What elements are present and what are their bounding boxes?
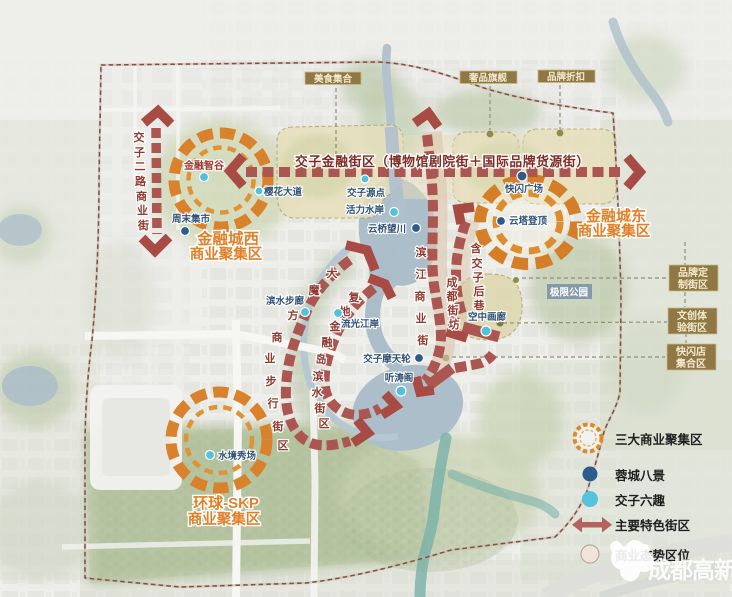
svg-text:滨: 滨 — [416, 245, 427, 259]
svg-text:美食集合: 美食集合 — [313, 73, 353, 85]
svg-text:区: 区 — [278, 439, 289, 452]
svg-text:交子摩天轮: 交子摩天轮 — [363, 353, 411, 365]
svg-text:交: 交 — [472, 256, 483, 270]
svg-text:环球-SKP: 环球-SKP — [193, 494, 259, 512]
svg-text:子: 子 — [473, 271, 484, 284]
svg-text:文创体: 文创体 — [677, 309, 708, 322]
svg-text:都: 都 — [446, 289, 458, 303]
svg-text:复: 复 — [348, 290, 361, 304]
svg-text:集合区: 集合区 — [675, 357, 706, 370]
svg-text:金融城东: 金融城东 — [585, 207, 646, 225]
svg-text:金融智谷: 金融智谷 — [183, 159, 225, 172]
svg-text:岛: 岛 — [316, 352, 327, 366]
svg-text:步: 步 — [266, 374, 277, 388]
svg-text:周末集市: 周末集市 — [172, 213, 211, 225]
svg-text:云塔登顶: 云塔登顶 — [509, 215, 548, 227]
svg-text:极限公园: 极限公园 — [550, 287, 588, 299]
svg-text:成都高新: 成都高新 — [648, 557, 732, 583]
svg-text:二: 二 — [135, 161, 146, 173]
svg-text:含: 含 — [470, 241, 483, 255]
svg-text:魔: 魔 — [309, 283, 321, 297]
svg-text:水: 水 — [312, 385, 324, 399]
svg-text:品牌折扣: 品牌折扣 — [547, 71, 585, 83]
svg-text:快闪店: 快闪店 — [675, 345, 706, 358]
svg-text:商: 商 — [272, 330, 283, 344]
svg-text:验街区: 验街区 — [677, 321, 707, 334]
svg-text:奢品旗舰: 奢品旗舰 — [468, 72, 508, 84]
svg-text:街: 街 — [137, 218, 149, 232]
svg-text:品牌定: 品牌定 — [678, 266, 708, 279]
svg-text:主要特色街区: 主要特色街区 — [615, 518, 691, 533]
svg-text:蓉城八景: 蓉城八景 — [615, 468, 666, 483]
svg-text:行: 行 — [267, 396, 279, 410]
svg-text:水境秀场: 水境秀场 — [218, 450, 257, 462]
svg-text:业: 业 — [137, 203, 148, 217]
svg-text:流光江岸: 流光江岸 — [341, 318, 380, 330]
svg-text:快闪广场: 快闪广场 — [505, 183, 544, 195]
svg-text:樱花大道: 樱花大道 — [263, 186, 303, 198]
svg-text:方: 方 — [288, 308, 299, 322]
svg-text:交: 交 — [134, 130, 145, 144]
svg-text:路: 路 — [135, 174, 147, 188]
svg-text:听涛阁: 听涛阁 — [385, 372, 414, 384]
svg-text:江: 江 — [416, 267, 427, 281]
svg-text:滨: 滨 — [313, 369, 324, 383]
svg-text:业: 业 — [265, 351, 276, 365]
svg-text:交子六趣: 交子六趣 — [615, 493, 666, 508]
svg-text:金: 金 — [329, 319, 342, 333]
svg-text:交子金融街区（博物馆剧院街＋国际品牌货源街）: 交子金融街区（博物馆剧院街＋国际品牌货源街） — [295, 154, 590, 169]
svg-text:三大商业聚集区: 三大商业聚集区 — [615, 432, 703, 447]
svg-text:街: 街 — [272, 419, 284, 433]
svg-text:商: 商 — [136, 189, 147, 203]
svg-text:后: 后 — [474, 284, 485, 298]
svg-text:巷: 巷 — [473, 298, 486, 312]
svg-text:融: 融 — [322, 335, 333, 349]
svg-text:子: 子 — [134, 146, 145, 159]
svg-text:滨水步廊: 滨水步廊 — [266, 295, 305, 307]
svg-text:金融城西: 金融城西 — [196, 229, 259, 248]
svg-text:业: 业 — [416, 311, 427, 325]
svg-text:区: 区 — [319, 417, 330, 430]
svg-text:大: 大 — [327, 266, 338, 280]
svg-text:活力水岸: 活力水岸 — [346, 204, 385, 216]
svg-text:街: 街 — [314, 401, 326, 415]
svg-text:成: 成 — [447, 275, 458, 289]
svg-text:商业聚集区: 商业聚集区 — [190, 245, 263, 263]
svg-text:商业聚集区: 商业聚集区 — [188, 510, 261, 528]
svg-text:街: 街 — [417, 333, 429, 347]
svg-text:云桥望川: 云桥望川 — [368, 223, 406, 235]
svg-text:商: 商 — [415, 289, 426, 303]
svg-text:空中画廊: 空中画廊 — [468, 311, 507, 323]
svg-text:商业聚集区: 商业聚集区 — [578, 222, 651, 240]
svg-text:街: 街 — [447, 303, 459, 317]
svg-text:交子源点: 交子源点 — [347, 187, 386, 199]
svg-text:坊: 坊 — [449, 317, 460, 331]
svg-text:制街区: 制街区 — [678, 278, 708, 291]
